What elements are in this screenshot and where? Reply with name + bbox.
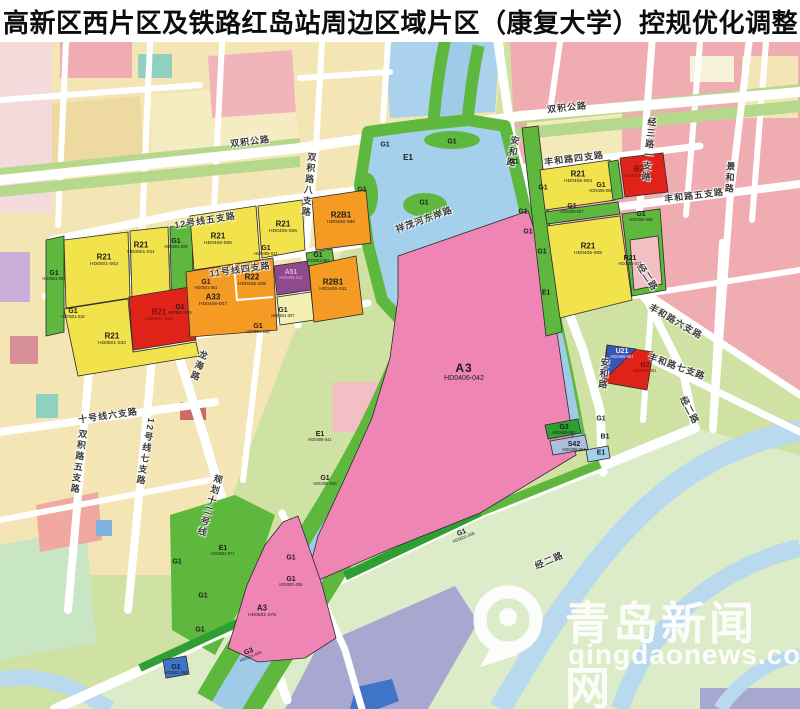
- planning-map-page: 高新区西片区及铁路红岛站周边区域片区（康复大学）控规优化调整 双积公路双积公路安…: [0, 0, 800, 709]
- watermark-site-url: qingdaonews.com: [568, 639, 800, 671]
- title-bar: 高新区西片区及铁路红岛站周边区域片区（康复大学）控规优化调整: [0, 0, 800, 42]
- watermark: 青岛新闻网 qingdaonews.com: [460, 575, 800, 685]
- page-title: 高新区西片区及铁路红岛站周边区域片区（康复大学）控规优化调整: [0, 3, 798, 40]
- qingdaonews-q-logo-icon: [460, 575, 560, 675]
